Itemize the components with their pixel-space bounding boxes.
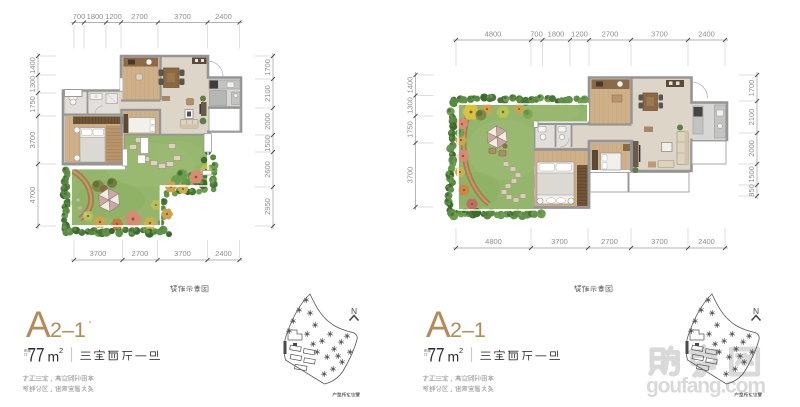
svg-text:3700: 3700 <box>406 167 415 184</box>
svg-text:3700: 3700 <box>551 237 568 246</box>
svg-text:3700: 3700 <box>174 249 191 258</box>
svg-text:m: m <box>448 349 460 365</box>
svg-text:2700: 2700 <box>131 12 148 21</box>
svg-text:3700: 3700 <box>28 132 37 149</box>
svg-text:1700: 1700 <box>263 59 272 76</box>
svg-text:4700: 4700 <box>28 187 37 204</box>
svg-text:1300: 1300 <box>28 76 37 93</box>
svg-text:2–1: 2–1 <box>50 318 86 342</box>
svg-text:4800: 4800 <box>485 30 502 39</box>
svg-text:77: 77 <box>28 346 45 367</box>
svg-text:700: 700 <box>73 12 86 21</box>
svg-text:′: ′ <box>89 319 91 331</box>
svg-text:goufang.com: goufang.com <box>646 375 766 398</box>
svg-text:4800: 4800 <box>485 237 502 246</box>
svg-text:2400: 2400 <box>215 12 232 21</box>
svg-text:1400: 1400 <box>406 77 415 94</box>
svg-text:3700: 3700 <box>174 12 191 21</box>
svg-text:2000: 2000 <box>747 140 756 157</box>
svg-text:A: A <box>426 304 451 345</box>
svg-text:A: A <box>26 304 51 345</box>
svg-text:2700: 2700 <box>601 237 618 246</box>
svg-text:1400: 1400 <box>28 57 37 74</box>
svg-text:1200: 1200 <box>105 12 122 21</box>
svg-text:700: 700 <box>530 30 543 39</box>
svg-text:3700: 3700 <box>651 30 668 39</box>
svg-text:1750: 1750 <box>406 121 415 138</box>
svg-text:2700: 2700 <box>132 249 149 258</box>
svg-text:2400: 2400 <box>215 249 232 258</box>
svg-text:1500: 1500 <box>747 166 756 183</box>
svg-text:3700: 3700 <box>651 237 668 246</box>
svg-text:2700: 2700 <box>602 30 619 39</box>
svg-text:1800: 1800 <box>548 30 565 39</box>
svg-text:850: 850 <box>747 184 756 197</box>
svg-text:2000: 2000 <box>263 113 272 130</box>
svg-text:1700: 1700 <box>747 80 756 97</box>
svg-text:1200: 1200 <box>571 30 588 39</box>
svg-text:m: m <box>48 349 60 365</box>
svg-text:2400: 2400 <box>698 30 715 39</box>
svg-text:2400: 2400 <box>698 237 715 246</box>
svg-text:2100: 2100 <box>263 85 272 102</box>
svg-text:1500: 1500 <box>263 135 272 152</box>
svg-text:77: 77 <box>428 346 445 367</box>
svg-text:2–1: 2–1 <box>450 318 486 342</box>
svg-text:1300: 1300 <box>406 97 415 114</box>
svg-text:2: 2 <box>459 346 463 355</box>
svg-text:1750: 1750 <box>28 96 37 113</box>
svg-text:1800: 1800 <box>87 12 104 21</box>
svg-text:2950: 2950 <box>263 198 272 215</box>
svg-text:3700: 3700 <box>90 249 107 258</box>
svg-text:2: 2 <box>59 346 63 355</box>
svg-text:2100: 2100 <box>747 109 756 126</box>
svg-text:2600: 2600 <box>263 161 272 178</box>
